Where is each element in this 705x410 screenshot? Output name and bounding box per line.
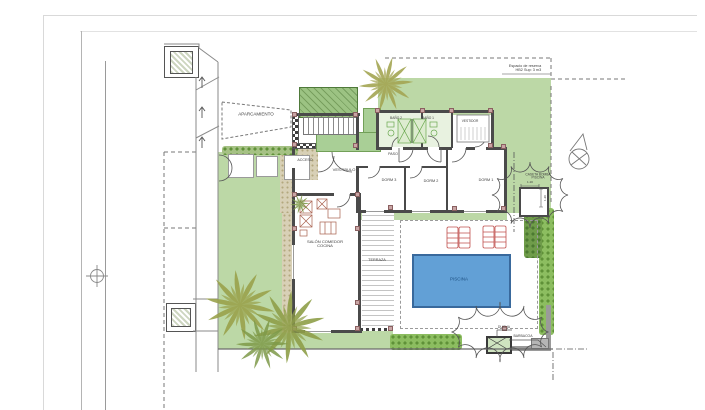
- aparcamiento-outline: [222, 102, 291, 139]
- north-arrow-icon: [569, 134, 589, 169]
- label-salon: SALÓN COMEDOR COCINA: [307, 240, 343, 248]
- label-dorm2: DORM 2: [424, 179, 439, 183]
- label-terraza: TERRAZA: [368, 258, 386, 262]
- dimension-lines: [521, 184, 543, 207]
- label-acceso: ACCESO: [297, 158, 312, 162]
- label-caseta-line2: PISCINA: [525, 176, 550, 179]
- plan-linework: [0, 0, 705, 410]
- label-espacio-reserva: Espacio de reserva HB2 Sup: 3 m3: [509, 64, 541, 72]
- site-lines: [164, 44, 219, 372]
- label-caseta: CASETA BOMBA PISCINA: [525, 173, 550, 179]
- label-paso: PASO: [388, 152, 398, 156]
- label-espacio-reserva-line2: HB2 Sup: 3 m3: [509, 68, 541, 72]
- label-bano2: BAÑO 2: [390, 116, 402, 119]
- label-piscina: PISCINA: [450, 277, 468, 282]
- label-vestidor: VESTIDOR: [462, 119, 479, 122]
- benchmark-icon: [86, 265, 108, 287]
- label-ducha: DUCHA: [498, 325, 510, 328]
- floor-plan-sheet: APARCAMIENTO ACCESO VESTIBULO PASO BAÑO …: [0, 0, 705, 410]
- label-salon-line2: COCINA: [307, 244, 343, 248]
- label-vestibulo: VESTIBULO: [333, 168, 356, 172]
- palm-tree-icon: [197, 57, 413, 380]
- label-aparcamiento: APARCAMIENTO: [238, 112, 274, 117]
- label-bano1: BAÑO 1: [422, 116, 434, 119]
- sun-loungers: [447, 226, 506, 248]
- ducha-tray-cross: [487, 337, 507, 349]
- dimension-caseta-width: 1.20: [527, 180, 533, 183]
- label-barbacoa: BARBACOA: [513, 334, 532, 337]
- revision-cloud-ducha: [452, 302, 548, 362]
- label-dorm3: DORM 3: [382, 178, 397, 182]
- label-dorm1: DORM 1: [479, 178, 494, 182]
- dimension-caseta-height: 1.20: [543, 195, 546, 201]
- boundary-lines: [164, 58, 628, 408]
- kitchen-fixtures: [300, 199, 340, 236]
